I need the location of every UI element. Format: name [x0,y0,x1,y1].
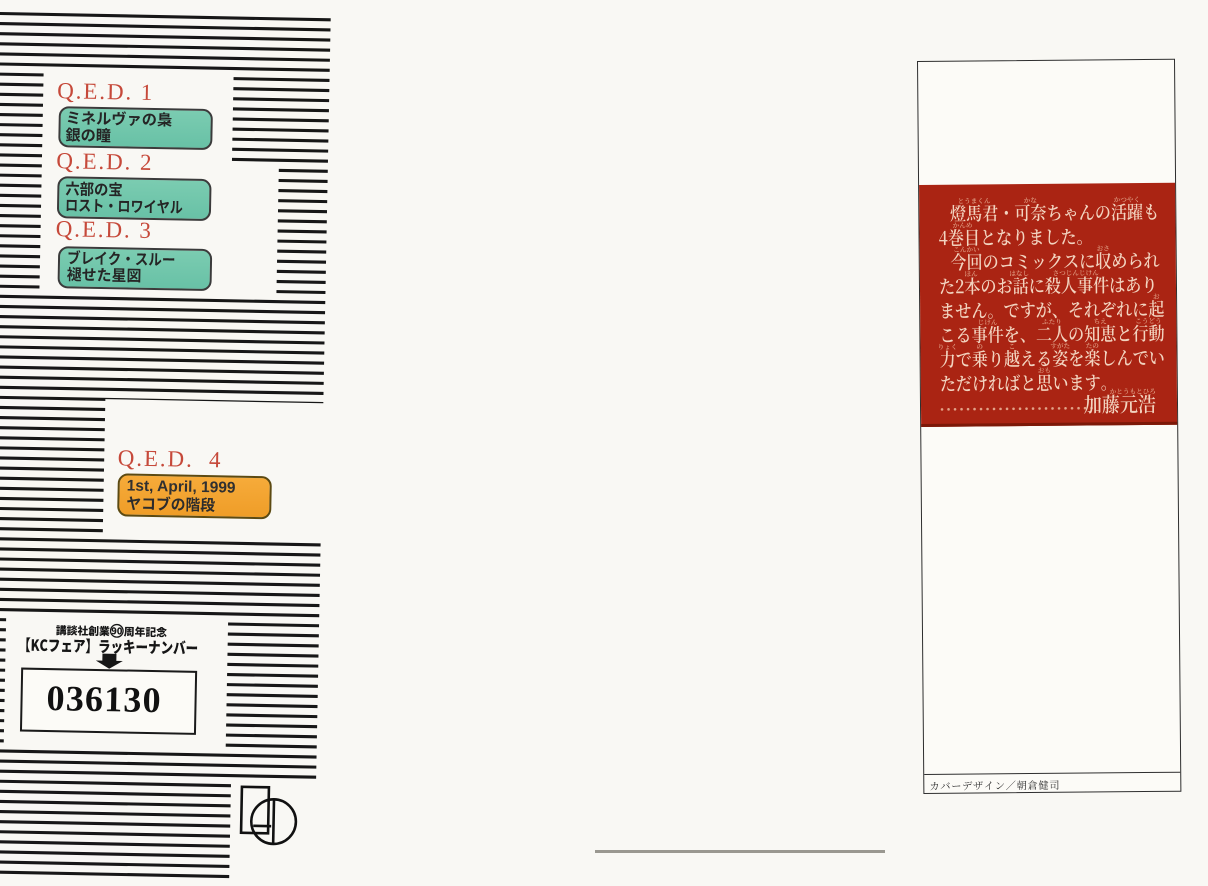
svg-text:1st, April, 1999: 1st, April, 1999 [127,478,237,497]
